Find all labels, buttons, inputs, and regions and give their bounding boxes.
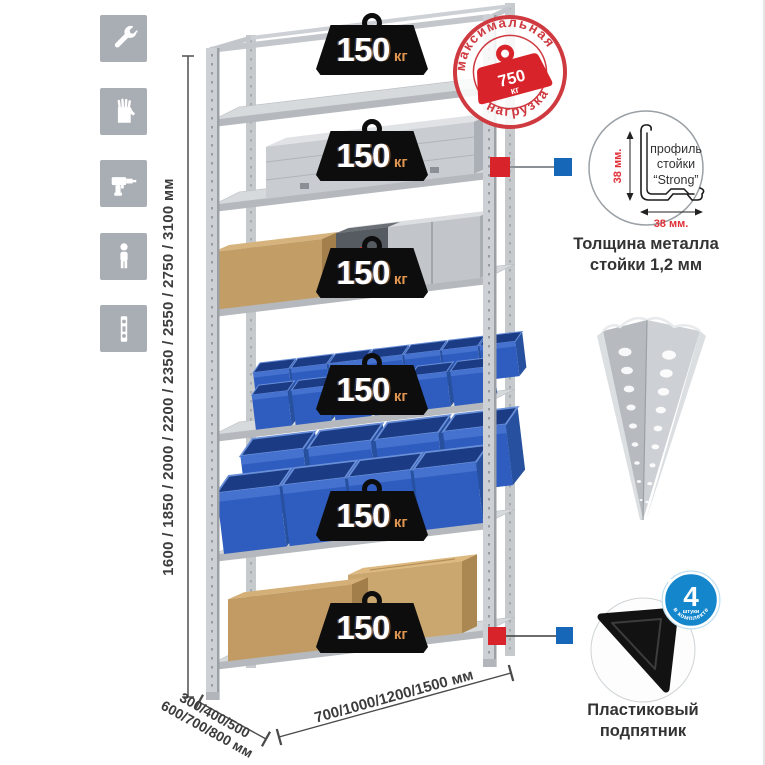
load-value: 150 bbox=[336, 254, 390, 292]
profile-label-2: стойки bbox=[657, 157, 695, 171]
load-unit: кг bbox=[394, 388, 408, 405]
person-icon bbox=[100, 233, 147, 280]
height-dimension-line bbox=[182, 56, 194, 697]
load-unit: кг bbox=[394, 48, 408, 65]
plastic-foot-detail: 4 штуки в комплекте bbox=[591, 571, 720, 702]
load-value: 150 bbox=[336, 371, 390, 409]
assembly-icons bbox=[100, 15, 147, 352]
load-unit: кг bbox=[394, 271, 408, 288]
profile-label-3: “Strong” bbox=[653, 173, 698, 187]
load-unit: кг bbox=[394, 154, 408, 171]
shelf-load-badge-5: 150кг bbox=[316, 479, 428, 555]
shelf-load-badge-2: 150кг bbox=[316, 119, 428, 195]
foot-caption-line1: Пластиковый bbox=[558, 700, 728, 721]
profile-dim-horizontal: 38 мм. bbox=[654, 218, 689, 230]
perforated-strip-icon bbox=[100, 305, 147, 352]
gloves-icon bbox=[100, 88, 147, 135]
load-value: 150 bbox=[336, 609, 390, 647]
thickness-caption-line2: стойки 1,2 мм bbox=[561, 255, 731, 276]
profile-dim-vertical: 38 мм. bbox=[612, 149, 624, 184]
shelf-load-badge-3: 150кг bbox=[316, 236, 428, 312]
foot-caption-line2: подпятник bbox=[558, 721, 728, 742]
count-badge-value: 4 bbox=[683, 581, 699, 612]
load-value: 150 bbox=[336, 137, 390, 175]
product-infographic: максимальная нагрузка 750 кг 38 мм. 38 м… bbox=[0, 0, 765, 765]
height-dimension-label: 1600 / 1850 / 2000 / 2200 / 2350 / 2550 … bbox=[160, 77, 182, 677]
count-badge: 4 штуки в комплекте bbox=[662, 571, 720, 629]
thickness-caption-line1: Толщина металла bbox=[561, 234, 731, 255]
load-value: 150 bbox=[336, 31, 390, 69]
drill-icon bbox=[100, 160, 147, 207]
thickness-caption: Толщина металла стойки 1,2 мм bbox=[561, 234, 731, 275]
profile-callout-connector bbox=[490, 157, 572, 177]
angle-post-image bbox=[597, 318, 706, 520]
load-unit: кг bbox=[394, 626, 408, 643]
foot-callout-connector bbox=[488, 627, 573, 645]
wrench-icon bbox=[100, 15, 147, 62]
shelf-load-badge-1: 150кг bbox=[316, 13, 428, 89]
profile-label-1: профиль bbox=[650, 142, 702, 156]
foot-caption: Пластиковый подпятник bbox=[558, 700, 728, 741]
shelf-load-badge-6: 150кг bbox=[316, 591, 428, 667]
load-unit: кг bbox=[394, 514, 408, 531]
load-value: 150 bbox=[336, 497, 390, 535]
profile-detail-circle: 38 мм. 38 мм. профиль стойки “Strong” bbox=[589, 111, 704, 230]
shelf-load-badge-4: 150кг bbox=[316, 353, 428, 429]
